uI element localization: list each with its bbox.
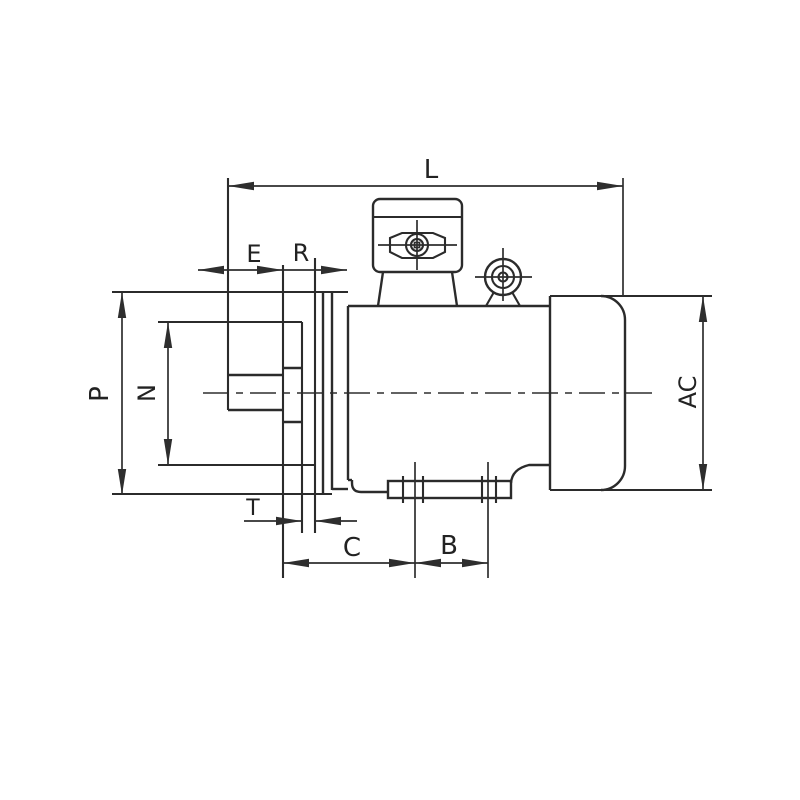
dim-label-N: N (133, 384, 161, 402)
drawing-page: L E R P N AC (0, 0, 800, 800)
arrowhead (699, 464, 707, 490)
arrowhead (228, 182, 254, 190)
dimension-E-R: E R (198, 239, 347, 274)
dimension-T: T (244, 496, 357, 525)
dim-label-C: C (343, 533, 361, 563)
dim-label-T: T (245, 496, 260, 521)
dim-label-B: B (440, 531, 458, 561)
dim-label-L: L (424, 155, 439, 185)
dim-label-P: P (85, 386, 115, 402)
body-foot-fillet-right (511, 465, 550, 483)
mounting-feet (388, 476, 511, 503)
shaft (228, 178, 282, 410)
arrowhead (389, 559, 415, 567)
dim-label-R: R (293, 239, 310, 267)
dimension-N: N (133, 322, 172, 465)
arrowhead (118, 469, 126, 495)
arrowhead (462, 559, 488, 567)
motor-outline (112, 178, 712, 578)
dim-label-E: E (246, 240, 261, 268)
foot-pad (388, 481, 511, 498)
motor-body (348, 306, 550, 492)
flange (112, 258, 348, 578)
arrowhead (321, 266, 347, 274)
arrowhead (283, 559, 309, 567)
eyebolt-leg-left (486, 292, 494, 306)
arrowhead (164, 439, 172, 465)
dimension-annotations: L E R P N AC (85, 155, 707, 578)
arrowhead (315, 517, 341, 525)
dimension-C-B: C B (283, 462, 488, 578)
arrowhead (118, 292, 126, 318)
arrowhead (164, 322, 172, 348)
eyebolt-leg-right (512, 292, 520, 306)
dimension-P: P (85, 292, 126, 495)
arrowhead (597, 182, 623, 190)
dim-label-AC: AC (674, 376, 702, 409)
terminal-box-neck-right (452, 272, 457, 306)
arrowhead (276, 517, 302, 525)
body-foot-fillet-left (352, 480, 388, 492)
arrowhead (198, 266, 224, 274)
lifting-eyebolt (475, 248, 532, 306)
arrowhead (415, 559, 441, 567)
dimension-AC: AC (674, 296, 707, 490)
terminal-box (373, 199, 462, 306)
arrowhead (699, 296, 707, 322)
motor-dimension-drawing: L E R P N AC (0, 0, 800, 800)
dimension-L: L (228, 155, 623, 296)
terminal-box-neck-left (378, 272, 383, 306)
